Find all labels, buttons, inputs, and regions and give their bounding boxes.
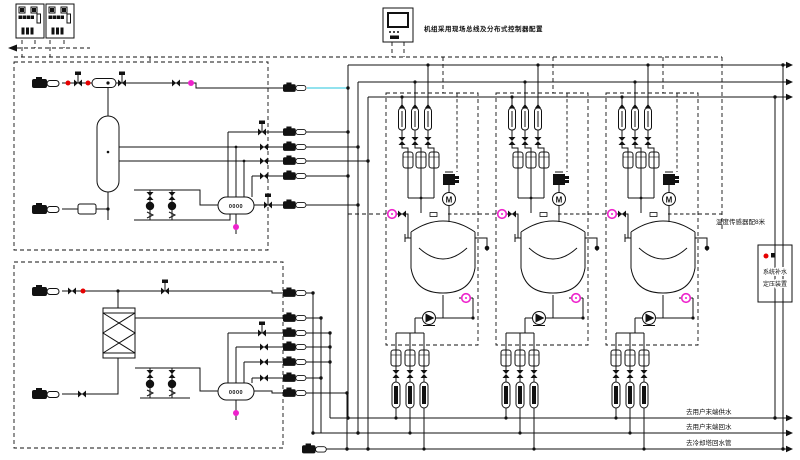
inline-filter: [92, 79, 116, 88]
inline-fitting: [78, 204, 96, 214]
red-valve: [66, 81, 71, 86]
hmi-note: 机组采用现场总线及分布式控制器配置: [424, 24, 543, 33]
pressurization-line2: 定压装置: [763, 280, 787, 288]
vessel-label: 0000: [229, 390, 243, 396]
hmi-panel: [383, 8, 413, 42]
reactor-unit-2: [496, 63, 599, 450]
pump-column-lower: [283, 288, 306, 397]
red-valve: [81, 289, 86, 294]
sensor-note: 温度传感器配8米: [716, 217, 766, 226]
bottom-header-pump: [302, 444, 326, 454]
magenta-valve: [188, 80, 194, 86]
reactor-unit-3: [606, 63, 709, 450]
magenta-valve: [233, 224, 239, 230]
pressurization-line1: 系统补水: [763, 268, 787, 276]
pipe-label-3: 去冷却塔回水管: [686, 438, 732, 447]
pump-column-upper: [283, 83, 306, 209]
schematic-canvas: 机组采用现场总线及分布式控制器配置 0000: [0, 0, 800, 460]
separator-tank: [97, 116, 119, 192]
red-valve: [86, 81, 91, 86]
control-cabinet-1: [16, 4, 44, 38]
junction-dots: [106, 63, 784, 450]
reactor-unit-1: [386, 63, 489, 450]
motor-label: M: [556, 196, 563, 205]
vessel-label: 0000: [229, 204, 243, 210]
pid-schematic: 机组采用现场总线及分布式控制器配置 0000: [0, 0, 800, 460]
wiring-arrow-left: [8, 45, 17, 52]
indicator-mark: [771, 253, 776, 258]
plate-heat-exchanger: [103, 308, 135, 358]
pipe-label-1: 去用户末端供水: [686, 407, 732, 416]
pipe-label-2: 去用户末端回水: [686, 422, 732, 431]
control-cabinet-2: [46, 4, 74, 38]
motor-label: M: [446, 196, 453, 205]
magenta-valve: [233, 410, 239, 416]
red-indicator: [764, 254, 769, 259]
motor-label: M: [666, 196, 673, 205]
